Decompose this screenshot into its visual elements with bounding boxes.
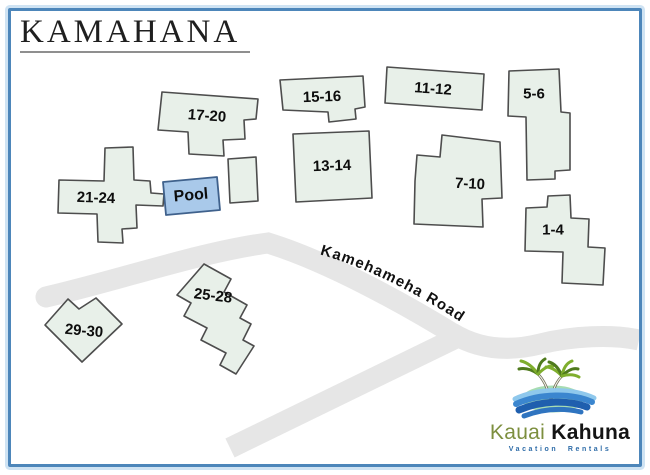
label-building-5-6: 5-6 [523,86,545,103]
logo-brand-first: Kauai [490,421,545,444]
logo-tagline: Vacation Rentals [473,446,647,453]
label-building-21-24: 21-24 [77,189,116,207]
property-map-page: Kamehameha Road [0,0,650,475]
logo-mark [515,359,594,416]
palm-fronds [519,359,579,377]
roads [46,243,639,448]
label-pool: Pool [173,186,209,207]
label-building-17-20: 17-20 [187,106,226,126]
label-building-11-12: 11-12 [414,79,453,99]
building-1-4 [525,195,605,285]
page-title: KAMAHANA [20,14,250,53]
building-25-28 [177,264,254,374]
label-building-29-30: 29-30 [64,321,104,341]
label-building-1-4: 1-4 [542,222,564,239]
buildings [45,67,605,374]
label-building-13-14: 13-14 [313,157,352,175]
building-small-unlabeled [228,157,258,203]
logo-brand-name: Kauai Kahuna [473,422,647,444]
label-building-15-16: 15-16 [303,88,342,106]
road-branch-east [452,333,639,348]
logo-wordmark: Kauai Kahuna Vacation Rentals [473,422,647,453]
logo-brand-second: Kahuna [551,421,630,444]
label-building-7-10: 7-10 [455,175,486,194]
road-branch-south [230,336,460,448]
